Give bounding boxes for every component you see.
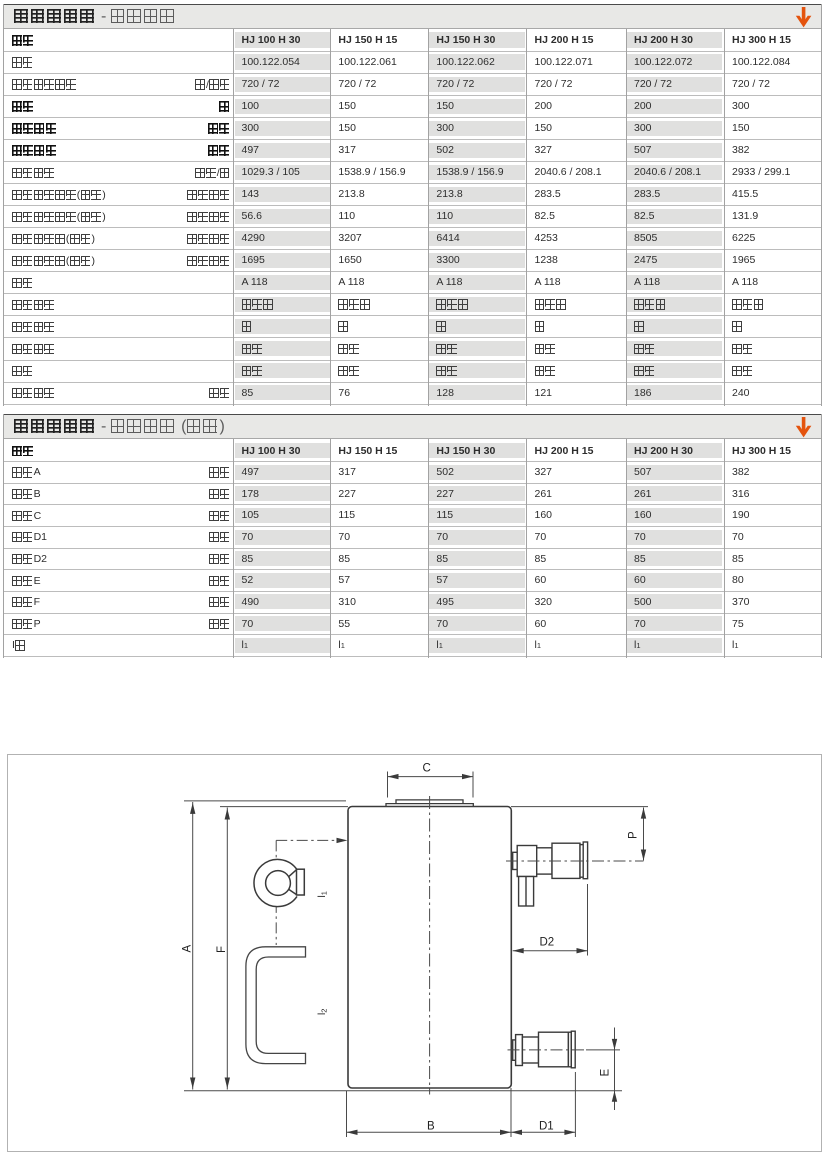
svg-text:l1: l1 <box>317 891 329 897</box>
svg-text:B: B <box>427 1121 435 1133</box>
svg-text:D2: D2 <box>540 936 555 948</box>
svg-text:C: C <box>423 763 431 775</box>
svg-text:A: A <box>182 945 194 953</box>
svg-text:P: P <box>628 831 640 839</box>
svg-text:E: E <box>600 1069 612 1077</box>
svg-text:l2: l2 <box>317 1009 329 1015</box>
svg-text:F: F <box>216 946 228 953</box>
svg-text:D1: D1 <box>539 1121 554 1133</box>
